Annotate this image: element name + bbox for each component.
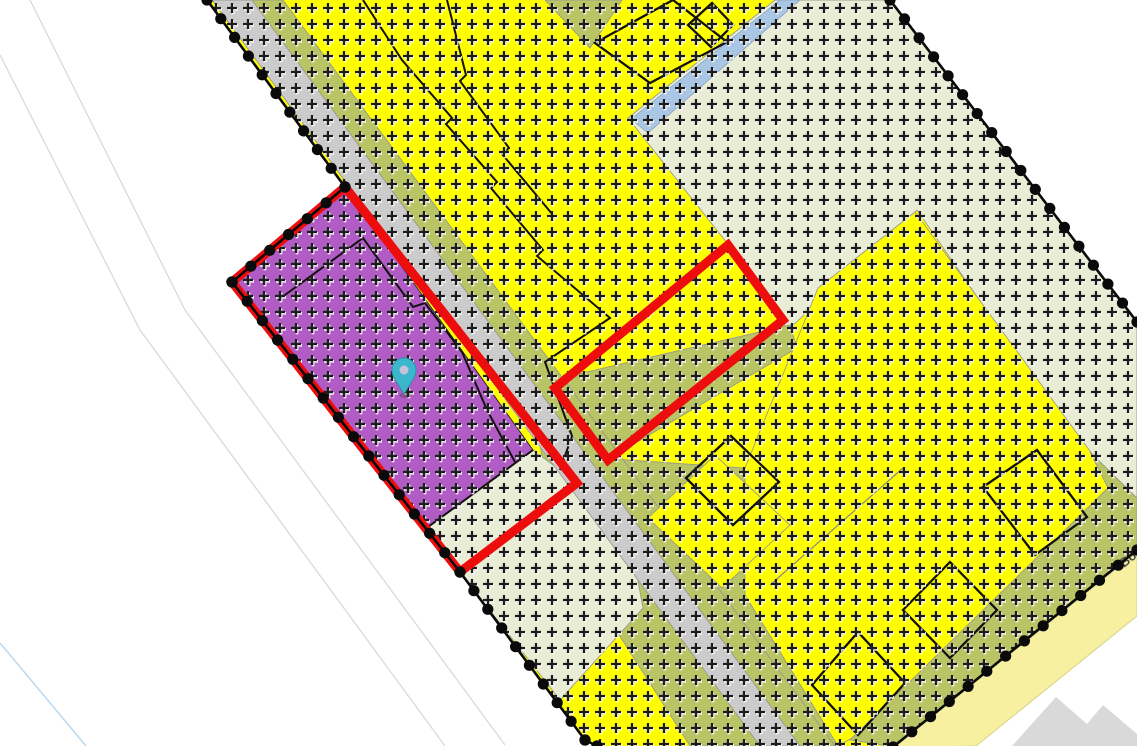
boundary-dot [1075,590,1086,601]
boundary-dot [1019,635,1030,646]
boundary-dot [1059,222,1070,233]
boundary-dot [928,51,939,62]
boundary-dot [1044,203,1055,214]
boundary-dot [1117,298,1128,309]
boundary-dot [378,470,389,481]
boundary-dot [326,163,337,174]
boundary-dot [963,681,974,692]
boundary-dot [348,431,359,442]
boundary-dot [538,678,549,689]
boundary-dot [270,88,281,99]
boundary-dot [272,334,283,345]
boundary-dot [284,107,295,118]
boundary-dot [226,276,237,287]
boundary-dot [264,245,275,256]
boundary-dot [1073,241,1084,252]
boundary-dot [957,89,968,100]
boundary-dot [1000,651,1011,662]
boundary-dot [1038,620,1049,631]
boundary-dot [1015,165,1026,176]
boundary-dot [287,354,298,365]
boundary-dot [312,144,323,155]
boundary-dot [524,660,535,671]
boundary-dot [1102,279,1113,290]
boundary-dot [439,547,450,558]
pin-hole [400,366,409,375]
boundary-dot [972,108,983,119]
boundary-dot [245,261,256,272]
pin-shadow [400,393,412,398]
boundary-dot [986,127,997,138]
boundary-dot [906,726,917,737]
boundary-dot [283,229,294,240]
boundary-dot [1056,605,1067,616]
boundary-dot [482,604,493,615]
boundary-dot [424,528,435,539]
boundary-dot [1094,575,1105,586]
boundary-dot [321,197,332,208]
boundary-dot [333,412,344,423]
boundary-dot [363,450,374,461]
boundary-dot [899,13,910,24]
boundary-dot [1088,260,1099,271]
map-viewport[interactable]: Bo [0,0,1137,746]
boundary-dot [468,585,479,596]
boundary-dot [1113,560,1124,571]
boundary-dot [409,508,420,519]
boundary-dot [510,641,521,652]
boundary-dot [1030,184,1041,195]
boundary-dot [229,32,240,43]
boundary-dot [566,716,577,727]
boundary-dot [318,392,329,403]
boundary-dot [914,32,925,43]
boundary-dot [454,566,465,577]
boundary-dot [257,315,268,326]
boundary-dot [215,13,226,24]
boundary-dot [579,734,590,745]
boundary-dot [925,711,936,722]
boundary-dot [552,697,563,708]
boundary-dot [242,296,253,307]
boundary-dot [943,70,954,81]
boundary-dot [302,373,313,384]
boundary-dot [944,696,955,707]
boundary-dot [981,666,992,677]
zoning-map-canvas[interactable]: Bo [0,0,1137,746]
boundary-dot [339,181,350,192]
boundary-dot [298,125,309,136]
boundary-dot [1001,146,1012,157]
boundary-dot [243,51,254,62]
boundary-dot [302,213,313,224]
boundary-dot [257,69,268,80]
boundary-dot [394,489,405,500]
boundary-dot [496,622,507,633]
